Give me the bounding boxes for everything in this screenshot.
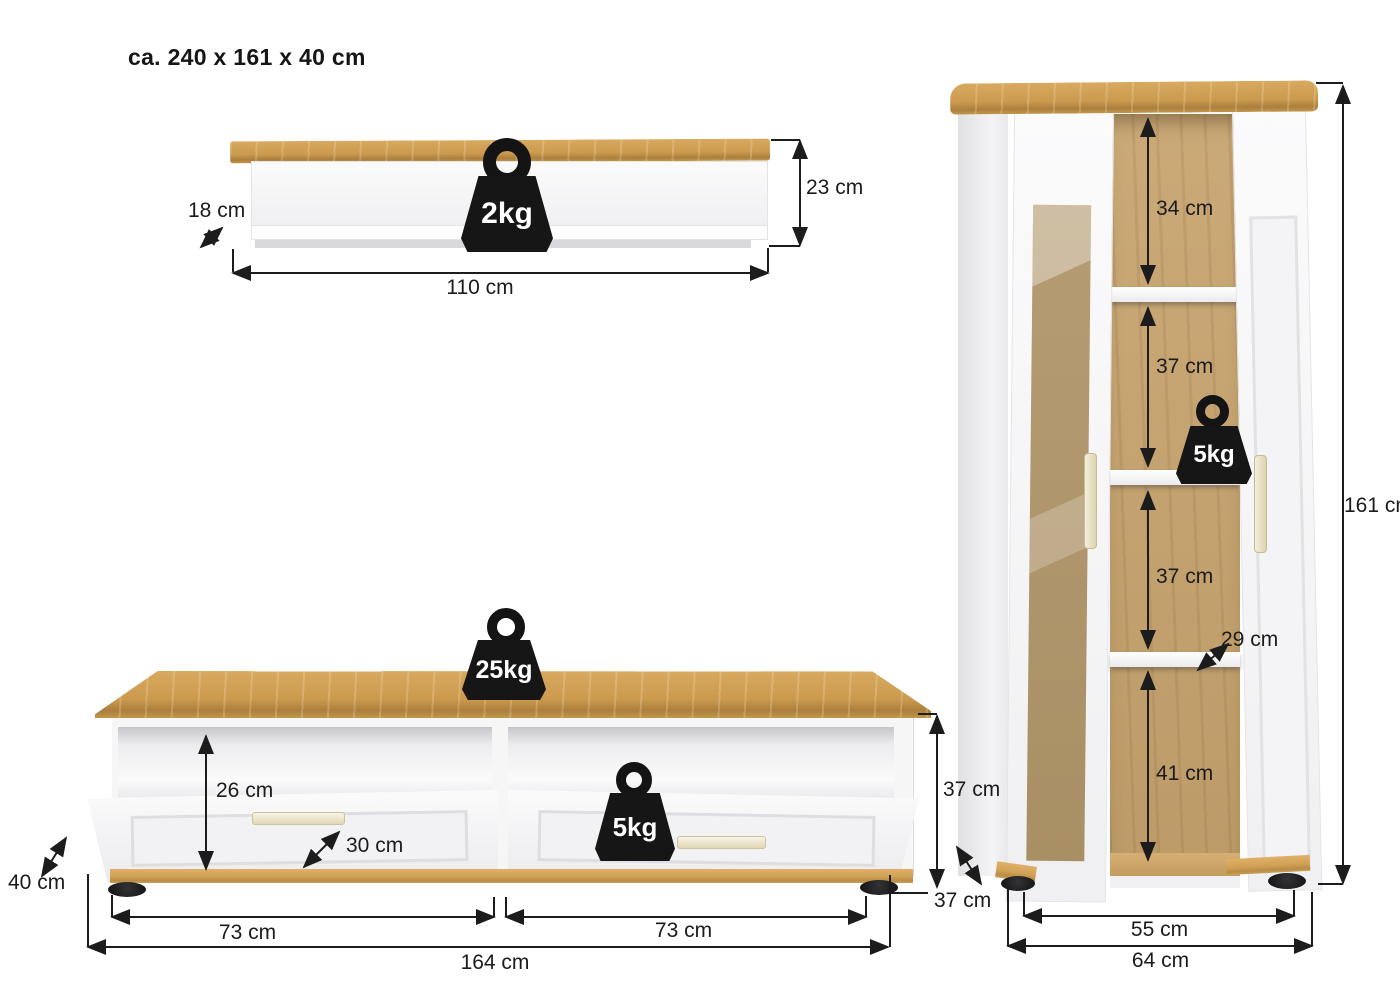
tv-height-label: 37 cm: [943, 778, 1000, 802]
tv-right-drawer-width-label: 73 cm: [621, 919, 746, 943]
shelf-depth-label: 18 cm: [188, 199, 245, 223]
cabinet-height-label: 161 cm: [1344, 494, 1400, 518]
cabinet-inner-width-label: 55 cm: [1097, 918, 1222, 942]
tv-max-load-top-label: 25kg: [476, 656, 533, 685]
shelf-height-label: 23 cm: [806, 176, 863, 200]
cabinet-max-load-label: 5kg: [1193, 441, 1234, 469]
tv-depth-label: 40 cm: [8, 871, 65, 895]
tv-compartment-height-label: 26 cm: [216, 779, 273, 803]
weight-ring: [1196, 395, 1229, 428]
furniture-dimension-diagram: ca. 240 x 161 x 40 cm 2kg: [0, 0, 1400, 1001]
cabinet-side-depth-label: 37 cm: [934, 889, 991, 913]
cabinet-shelf-depth-label: 29 cm: [1221, 628, 1278, 652]
dimension-lines: [0, 0, 1400, 1001]
weight-ring: [616, 762, 652, 798]
shelf-width-label: 110 cm: [400, 276, 560, 300]
cabinet-compartment2-label: 37 cm: [1156, 355, 1213, 379]
cabinet-compartment4-label: 41 cm: [1156, 762, 1213, 786]
tv-compartment-depth-label: 30 cm: [346, 834, 403, 858]
cabinet-total-width-label: 64 cm: [1098, 949, 1223, 973]
cabinet-compartment3-label: 37 cm: [1156, 565, 1213, 589]
cabinet-compartment1-label: 34 cm: [1156, 197, 1213, 221]
shelf-max-load-label: 2kg: [481, 197, 533, 231]
tv-max-load-drawer-label: 5kg: [613, 812, 658, 843]
tv-left-drawer-width-label: 73 cm: [185, 921, 310, 945]
tv-total-width-label: 164 cm: [420, 951, 570, 975]
